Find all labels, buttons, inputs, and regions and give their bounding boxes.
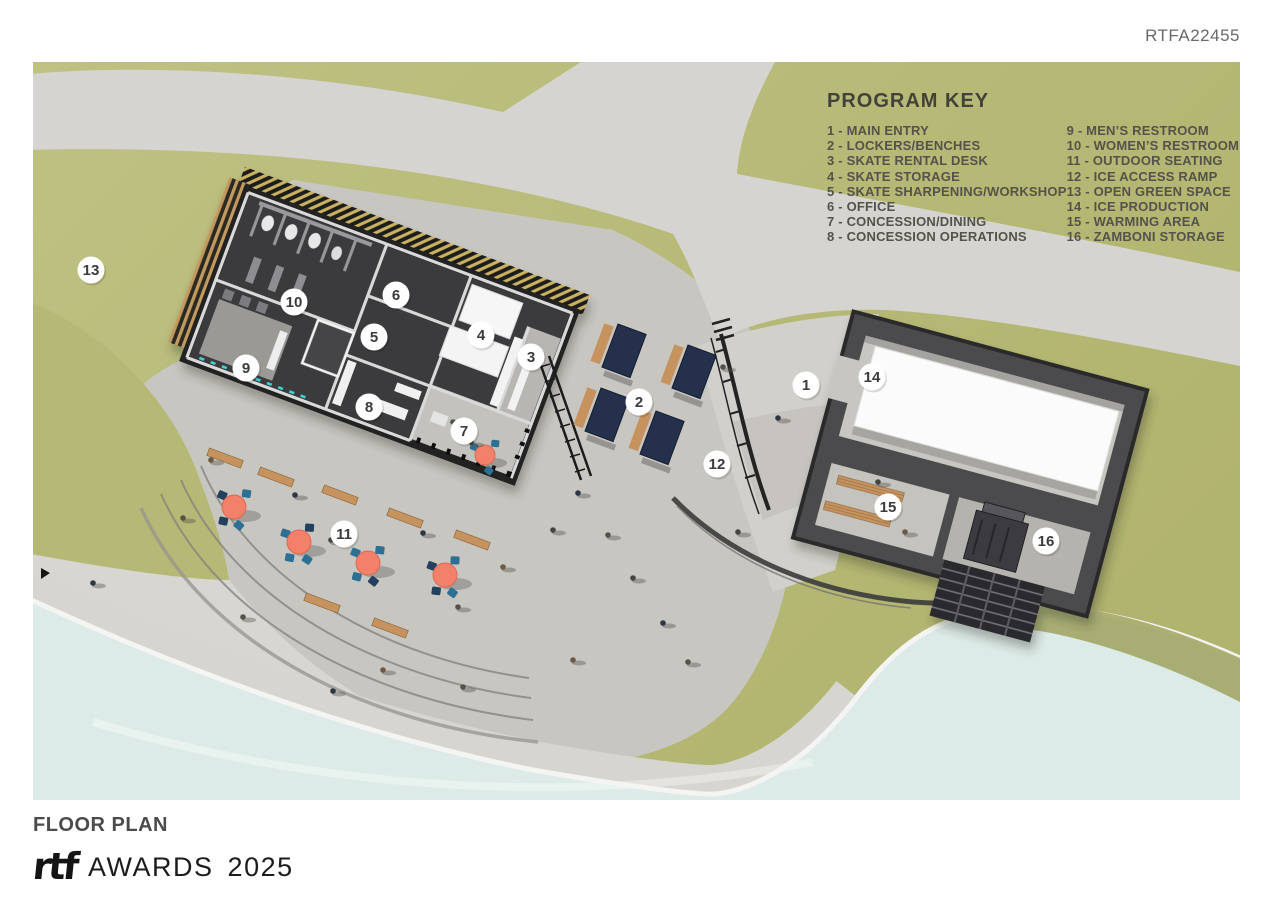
svg-text:13: 13 [83, 262, 100, 279]
rtf-logo-icon: rtf [31, 848, 78, 886]
page-title: FLOOR PLAN [33, 814, 168, 837]
floor-plan-rendering: 1 2 3 4 5 6 7 8 9 10 11 12 13 14 15 16 [33, 62, 1240, 800]
svg-text:1: 1 [802, 377, 810, 394]
svg-text:6: 6 [392, 287, 400, 304]
svg-text:5: 5 [370, 329, 378, 346]
svg-text:12: 12 [709, 456, 726, 473]
svg-text:16: 16 [1038, 533, 1055, 550]
presentation-board: RTFA22455 [0, 0, 1273, 900]
awards-text: AWARDS2025 [88, 852, 294, 883]
svg-text:7: 7 [460, 423, 468, 440]
svg-text:9: 9 [242, 360, 250, 377]
submission-code: RTFA22455 [1145, 26, 1240, 46]
svg-text:8: 8 [365, 399, 373, 416]
svg-text:2: 2 [635, 394, 643, 411]
svg-text:15: 15 [880, 499, 897, 516]
svg-text:3: 3 [527, 349, 535, 366]
svg-text:14: 14 [864, 369, 881, 386]
svg-text:10: 10 [286, 294, 303, 311]
svg-text:11: 11 [336, 526, 352, 543]
svg-text:4: 4 [477, 327, 486, 344]
awards-logo: rtf AWARDS2025 [33, 848, 294, 886]
